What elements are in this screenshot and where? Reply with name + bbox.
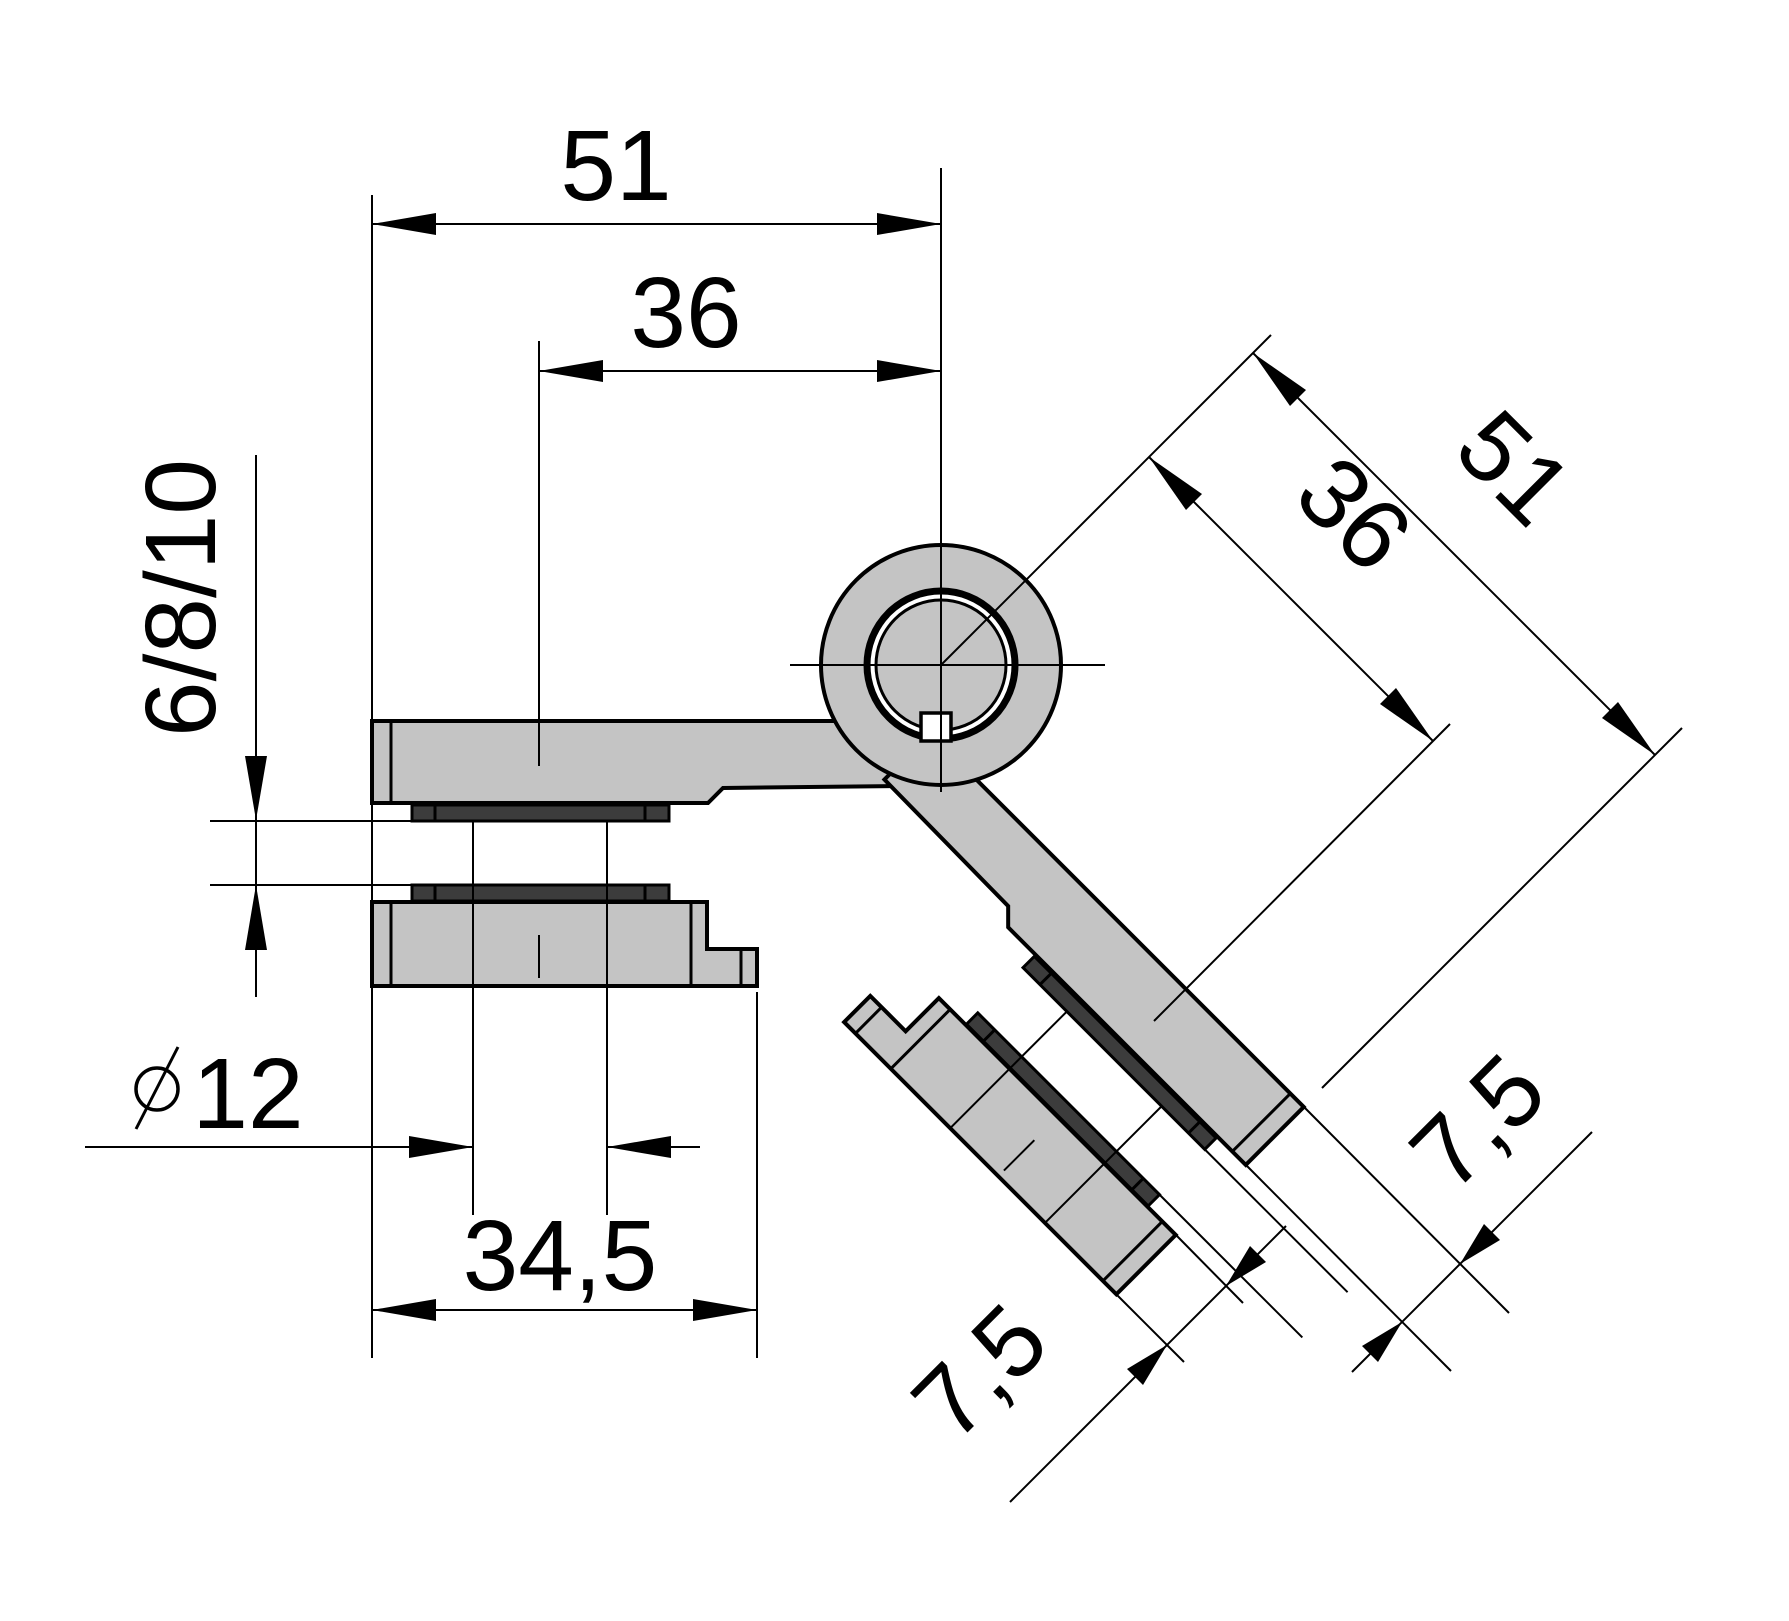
arrowhead-left-icon <box>607 1136 671 1158</box>
diagonal-centerline <box>941 335 1271 665</box>
diameter-symbol-slash <box>136 1047 178 1129</box>
dim-label-clamp-width: 34,5 <box>463 1200 658 1312</box>
left-clamp-assembly <box>210 721 900 986</box>
dim-glass-thickness: 6/8/10 <box>125 455 267 997</box>
diagonal-clamp-assembly <box>743 734 1418 1409</box>
dim-label-glass-thickness: 6/8/10 <box>125 459 237 737</box>
dim-label-clamp-plate-thickness: 7,5 <box>891 1283 1068 1460</box>
dim-arm-plate-thickness: 7,5 <box>1246 1033 1592 1372</box>
arrowhead-right-icon <box>877 213 941 235</box>
technical-drawing-canvas: 51 36 6/8/10 12 34,5 <box>0 0 1789 1621</box>
arrowhead-right-icon <box>409 1136 473 1158</box>
extension-line <box>1246 1165 1451 1371</box>
arrowhead-right-icon <box>693 1299 757 1321</box>
extension-line <box>1322 728 1682 1088</box>
arrowhead-left-icon <box>539 360 603 382</box>
extension-line <box>1154 724 1450 1021</box>
dim-diagonal-width: 51 <box>1253 353 1682 1088</box>
dim-hole-diameter: 12 <box>85 986 700 1215</box>
dim-label-diagonal-inner-width: 36 <box>1275 435 1433 593</box>
dim-label-top-width: 51 <box>560 110 671 222</box>
arrowhead-down-icon <box>245 756 267 820</box>
arrowhead-up-icon <box>245 885 267 950</box>
arrowhead-left-icon <box>372 213 436 235</box>
dim-clamp-width: 34,5 <box>372 992 757 1358</box>
dim-label-diagonal-width: 51 <box>1435 389 1593 547</box>
dim-diagonal-inner-width: 36 <box>1149 435 1450 1021</box>
arrowhead-right-icon <box>877 360 941 382</box>
dim-label-hole-diameter: 12 <box>192 1038 303 1150</box>
pin-keyway-notch <box>921 713 951 741</box>
arrowhead-left-icon <box>372 1299 436 1321</box>
extension-line <box>1116 1294 1184 1362</box>
dimension-line <box>1253 353 1655 755</box>
hinge-knuckle <box>790 168 1271 792</box>
hinge-technical-drawing: 51 36 6/8/10 12 34,5 <box>0 0 1789 1621</box>
dim-label-top-inner-width: 36 <box>630 257 741 369</box>
